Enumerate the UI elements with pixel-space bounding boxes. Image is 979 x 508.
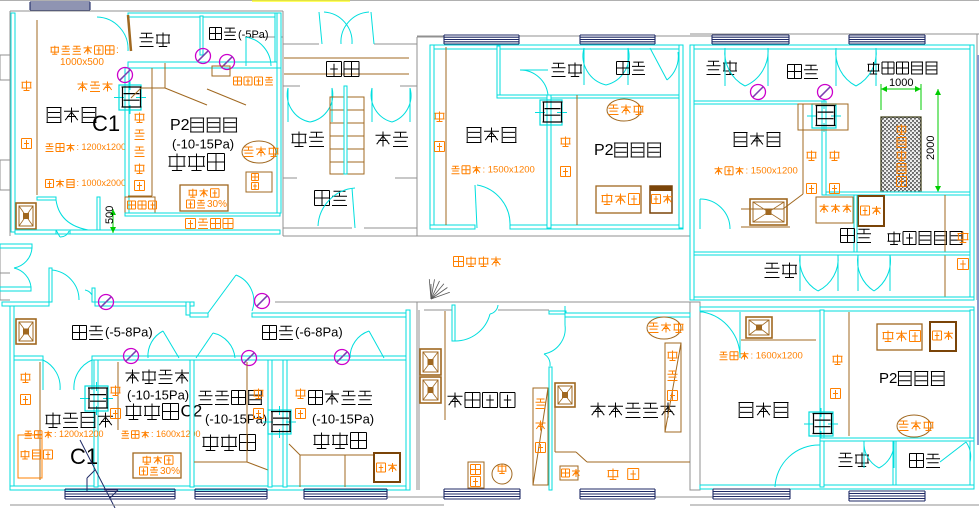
svg-text:: 1600x1200: : 1600x1200 <box>751 351 803 362</box>
svg-text:(-6-8Pa): (-6-8Pa) <box>295 324 343 339</box>
svg-text:1000: 1000 <box>889 77 913 89</box>
svg-text:(-5-8Pa): (-5-8Pa) <box>105 324 153 339</box>
svg-text:P2: P2 <box>594 142 614 159</box>
svg-text::: : <box>116 45 119 56</box>
svg-text:(-10-15Pa): (-10-15Pa) <box>312 411 374 426</box>
svg-text:P2: P2 <box>879 370 897 387</box>
svg-text:(-10-15Pa): (-10-15Pa) <box>172 136 234 151</box>
svg-text:2000: 2000 <box>925 136 937 160</box>
svg-text:: 1200x1200: : 1200x1200 <box>54 429 104 439</box>
svg-text:30%: 30% <box>207 199 227 210</box>
svg-text:1000x500: 1000x500 <box>60 57 104 68</box>
svg-text:(-10-15Pa): (-10-15Pa) <box>127 387 189 402</box>
svg-text:: 1200x1200: : 1200x1200 <box>77 142 127 152</box>
svg-text:P2: P2 <box>170 117 190 134</box>
svg-text:500: 500 <box>104 206 116 224</box>
svg-text:: 1500x1200: : 1500x1200 <box>746 166 798 177</box>
svg-text:: 1000x2000: : 1000x2000 <box>77 178 127 188</box>
svg-text:30%: 30% <box>160 466 180 477</box>
svg-text:: 1500x1200: : 1500x1200 <box>483 165 535 176</box>
svg-text:C1: C1 <box>92 111 120 136</box>
